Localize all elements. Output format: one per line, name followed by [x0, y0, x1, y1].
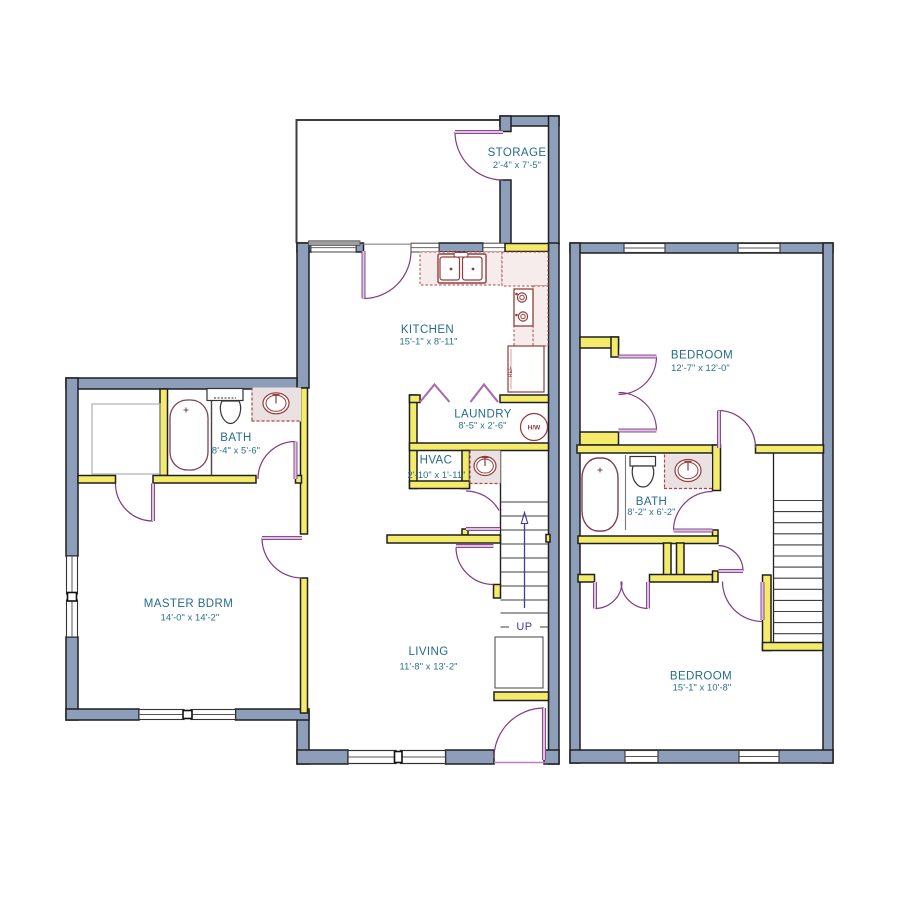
svg-text:2'-4" x 7'-5": 2'-4" x 7'-5": [493, 160, 541, 170]
svg-text:14'-0" x 14'-2": 14'-0" x 14'-2": [161, 613, 220, 623]
svg-text:8'-5" x 2'-6": 8'-5" x 2'-6": [458, 421, 506, 431]
svg-text:12'-7" x 12'-0": 12'-7" x 12'-0": [671, 363, 730, 373]
svg-text:H/W: H/W: [528, 425, 542, 432]
svg-text:15'-1" x 8'-11": 15'-1" x 8'-11": [400, 337, 458, 347]
svg-text:HVAC: HVAC: [420, 455, 453, 467]
svg-text:STORAGE: STORAGE: [488, 147, 547, 159]
svg-text:2'-10" x 1'-11": 2'-10" x 1'-11": [408, 470, 466, 480]
svg-text:8'-4" x 5'-6": 8'-4" x 5'-6": [212, 446, 260, 456]
svg-text:8'-2" x 6'-2": 8'-2" x 6'-2": [627, 507, 675, 517]
svg-text:REF: REF: [508, 366, 514, 378]
svg-text:LAUNDRY: LAUNDRY: [454, 409, 512, 421]
svg-text:MASTER BDRM: MASTER BDRM: [144, 598, 233, 610]
svg-text:LIVING: LIVING: [408, 646, 448, 658]
svg-text:11'-8" x 13'-2": 11'-8" x 13'-2": [400, 662, 458, 672]
svg-text:BATH: BATH: [220, 432, 251, 444]
svg-text:15'-1" x 10'-8": 15'-1" x 10'-8": [673, 683, 732, 693]
svg-text:KITCHEN: KITCHEN: [401, 324, 454, 336]
svg-text:BEDROOM: BEDROOM: [671, 350, 733, 362]
svg-text:BEDROOM: BEDROOM: [670, 671, 732, 683]
svg-text:UP: UP: [516, 621, 532, 633]
